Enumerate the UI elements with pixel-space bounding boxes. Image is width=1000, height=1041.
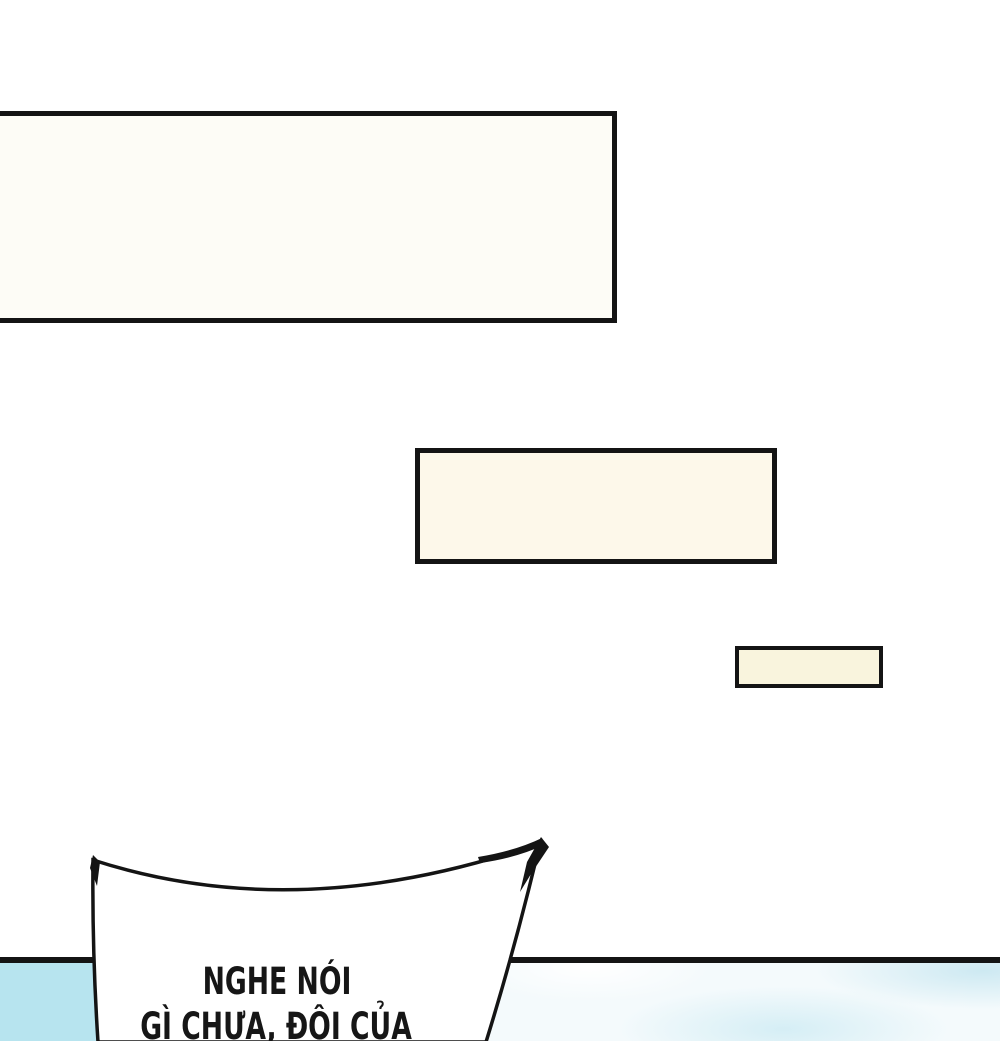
speech-text-line-2: GÌ CHƯA, ĐỘI CỦA xyxy=(132,1006,420,1041)
speech-bubble-corner-right xyxy=(520,837,549,892)
speech-bubble-top-thickening xyxy=(478,838,544,863)
caption-box-large xyxy=(0,111,617,323)
speech-text-line-1: NGHE NÓI xyxy=(133,961,421,1004)
comic-page: NGHE NÓI GÌ CHƯA, ĐỘI CỦA xyxy=(0,0,1000,1041)
speech-bubble-corner-left xyxy=(90,855,100,886)
caption-box-medium xyxy=(415,448,777,564)
sky-panel-right xyxy=(430,963,1000,1041)
caption-box-small xyxy=(735,646,883,688)
